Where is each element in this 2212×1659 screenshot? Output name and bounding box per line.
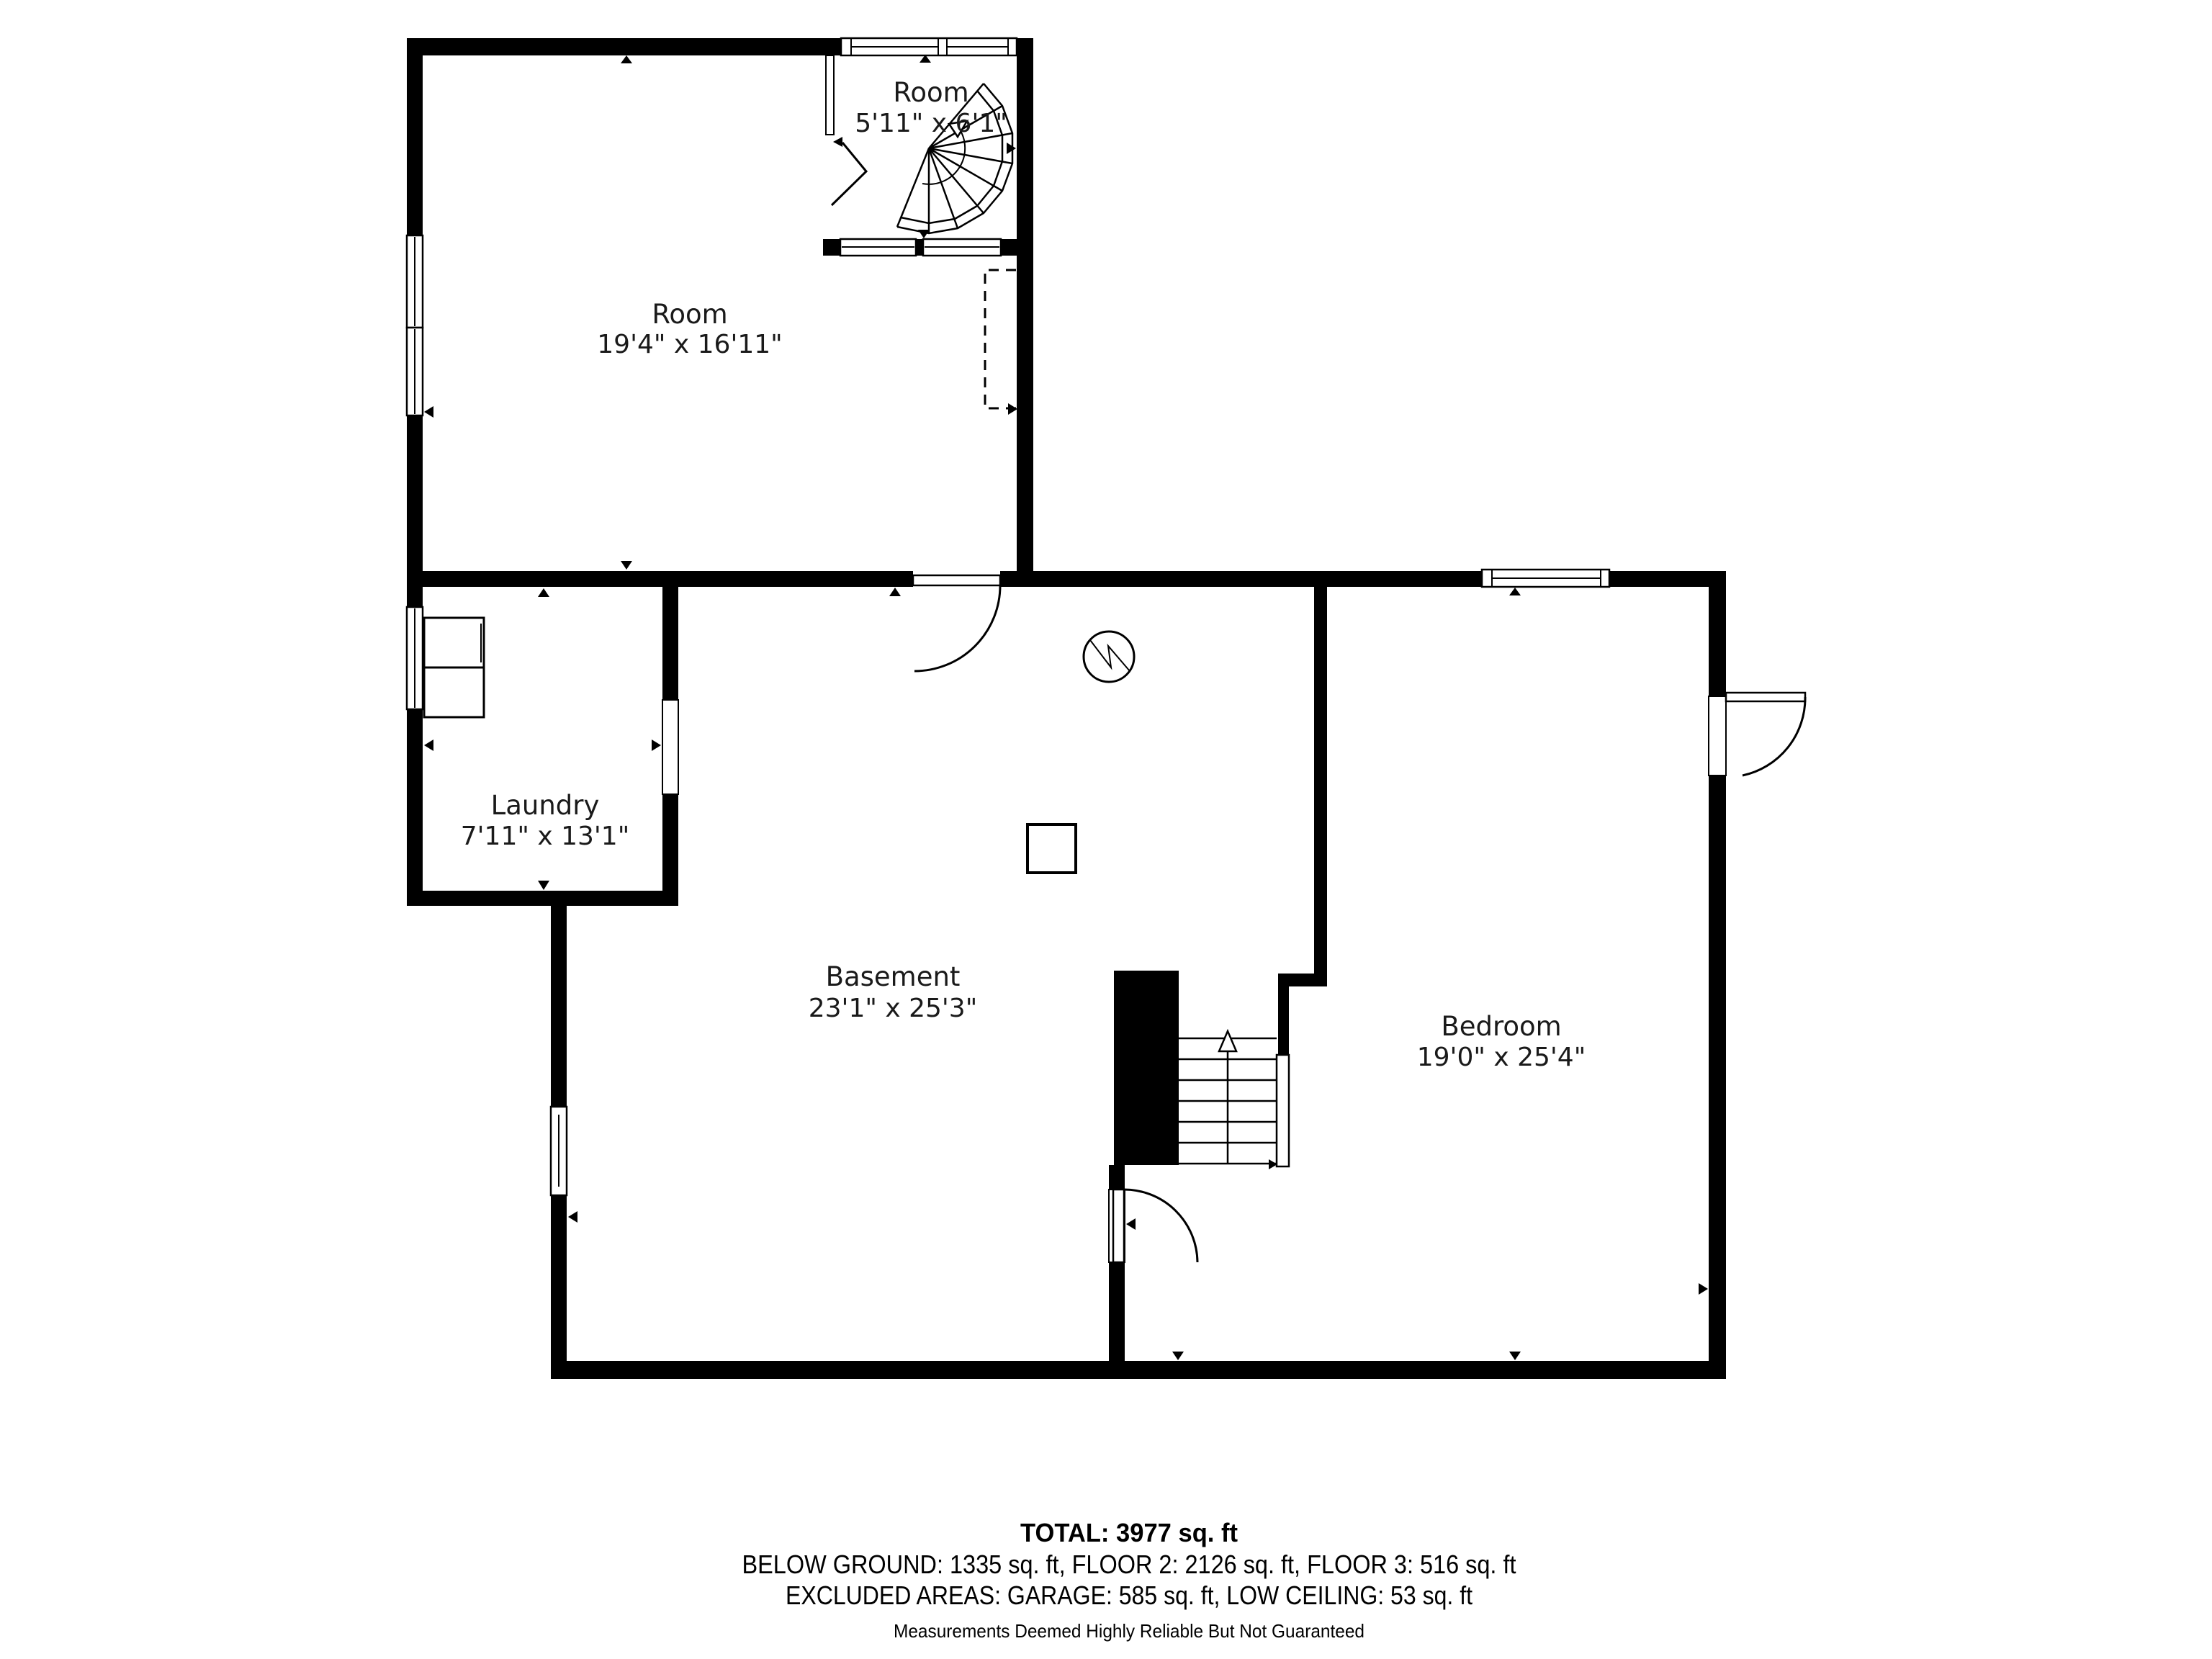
marker-arrow-down bbox=[1172, 1352, 1184, 1360]
window-divider bbox=[916, 239, 923, 256]
marker-arrow-left bbox=[424, 739, 433, 751]
footer-total: TOTAL: 3977 sq. ft bbox=[1020, 1518, 1238, 1547]
door-opening bbox=[1709, 696, 1726, 775]
marker-arrow-down bbox=[621, 561, 632, 570]
wall-stub bbox=[1001, 239, 1017, 256]
marker-arrow-up bbox=[621, 55, 632, 63]
marker-arrow-left bbox=[568, 1211, 577, 1223]
room-dims: 5'11" x 6'1" bbox=[855, 109, 1007, 138]
wall-mid-horizontal-left bbox=[407, 571, 913, 587]
wall-middle-lower bbox=[1278, 986, 1289, 1055]
wall-left-upper bbox=[407, 38, 423, 235]
marker-arrow-right bbox=[1699, 1283, 1708, 1295]
wall-right-lower bbox=[1709, 775, 1726, 1379]
marker-arrow-left bbox=[424, 406, 433, 418]
staircase bbox=[1179, 1031, 1289, 1166]
wall-upper-right bbox=[1017, 38, 1033, 587]
wall-middle bbox=[1314, 587, 1327, 974]
wall-right-upper bbox=[1709, 571, 1726, 696]
room-label: Basement bbox=[826, 961, 961, 992]
spiral-tread-line bbox=[897, 148, 929, 227]
wall-mid-horizontal-right bbox=[1609, 571, 1726, 587]
room-label: Room bbox=[652, 299, 727, 330]
room-label: Laundry bbox=[491, 790, 600, 821]
folding-door-lines bbox=[832, 143, 866, 205]
door-swing-arc bbox=[914, 585, 1000, 671]
direction-markers bbox=[424, 55, 1708, 1360]
marker-arrow-left bbox=[1126, 1218, 1136, 1230]
wall-laundry-bottom bbox=[407, 891, 678, 906]
footer-breakdown: BELOW GROUND: 1335 sq. ft, FLOOR 2: 2126… bbox=[742, 1550, 1516, 1579]
room-dims: 7'11" x 13'1" bbox=[461, 822, 630, 851]
wall-lowerleft-upper bbox=[551, 891, 567, 1107]
door-leaf bbox=[1113, 1190, 1124, 1262]
floor-plan-canvas: Room 5'11" x 6'1" Room 19'4" x 16'11" La… bbox=[0, 0, 2212, 1659]
room-dims: 23'1" x 25'3" bbox=[809, 994, 978, 1023]
wall-stub bbox=[823, 239, 840, 256]
door-leaf bbox=[913, 575, 1000, 585]
wall-laundry-right-lower bbox=[662, 794, 678, 906]
room-dims: 19'4" x 16'11" bbox=[597, 330, 782, 359]
wall-laundry-right-upper bbox=[662, 587, 678, 700]
spiral-tread-line bbox=[929, 148, 984, 213]
marker-arrow-down bbox=[538, 881, 549, 890]
wall-lowerleft-lower bbox=[551, 1195, 567, 1379]
partition-wall bbox=[826, 55, 834, 135]
marker-arrow-up bbox=[889, 588, 901, 596]
room-label: Bedroom bbox=[1441, 1011, 1561, 1042]
marker-arrow-down bbox=[1509, 1352, 1521, 1360]
door-opening bbox=[662, 700, 678, 794]
room-dims: 19'0" x 25'4" bbox=[1417, 1043, 1586, 1072]
marker-arrow-down bbox=[918, 230, 930, 238]
wall-top bbox=[407, 38, 841, 55]
footer-disclaimer: Measurements Deemed Highly Reliable But … bbox=[894, 1620, 1364, 1642]
wall-below-stairs-upper bbox=[1109, 1165, 1125, 1190]
footer: TOTAL: 3977 sq. ft BELOW GROUND: 1335 sq… bbox=[742, 1518, 1516, 1642]
stair-handrail bbox=[1277, 1055, 1289, 1166]
walls bbox=[407, 38, 1726, 1379]
footer-excluded: EXCLUDED AREAS: GARAGE: 585 sq. ft, LOW … bbox=[786, 1581, 1473, 1610]
dryer-icon bbox=[424, 667, 484, 717]
washer-icon bbox=[424, 618, 484, 667]
floor-plan-page: Room 5'11" x 6'1" Room 19'4" x 16'11" La… bbox=[0, 0, 2212, 1659]
wall-below-stairs-lower bbox=[1109, 1262, 1125, 1361]
marker-arrow-right bbox=[652, 739, 661, 751]
door-leaf bbox=[1726, 693, 1805, 701]
stair-up-arrow bbox=[1219, 1031, 1236, 1051]
wall-bottom bbox=[551, 1361, 1726, 1379]
wall-mid-horizontal-center bbox=[1000, 571, 1482, 587]
marker-arrow-up bbox=[1509, 588, 1521, 595]
doors bbox=[662, 55, 1805, 1262]
spiral-tread-line bbox=[929, 148, 958, 228]
wall-middle-jog bbox=[1278, 974, 1327, 986]
room-label: Room bbox=[893, 77, 968, 108]
windows bbox=[407, 38, 1609, 1195]
dashed-area-outline bbox=[985, 270, 1016, 408]
stair-wall-mass bbox=[1114, 971, 1179, 1165]
marker-arrow-left bbox=[833, 137, 842, 147]
support-post bbox=[1028, 824, 1076, 873]
wall-left-lower bbox=[407, 709, 423, 891]
marker-arrow-up bbox=[538, 588, 549, 597]
marker-arrow-right bbox=[1007, 143, 1016, 154]
marker-arrow-right bbox=[1008, 403, 1017, 415]
door-swing-arc bbox=[1743, 697, 1805, 775]
